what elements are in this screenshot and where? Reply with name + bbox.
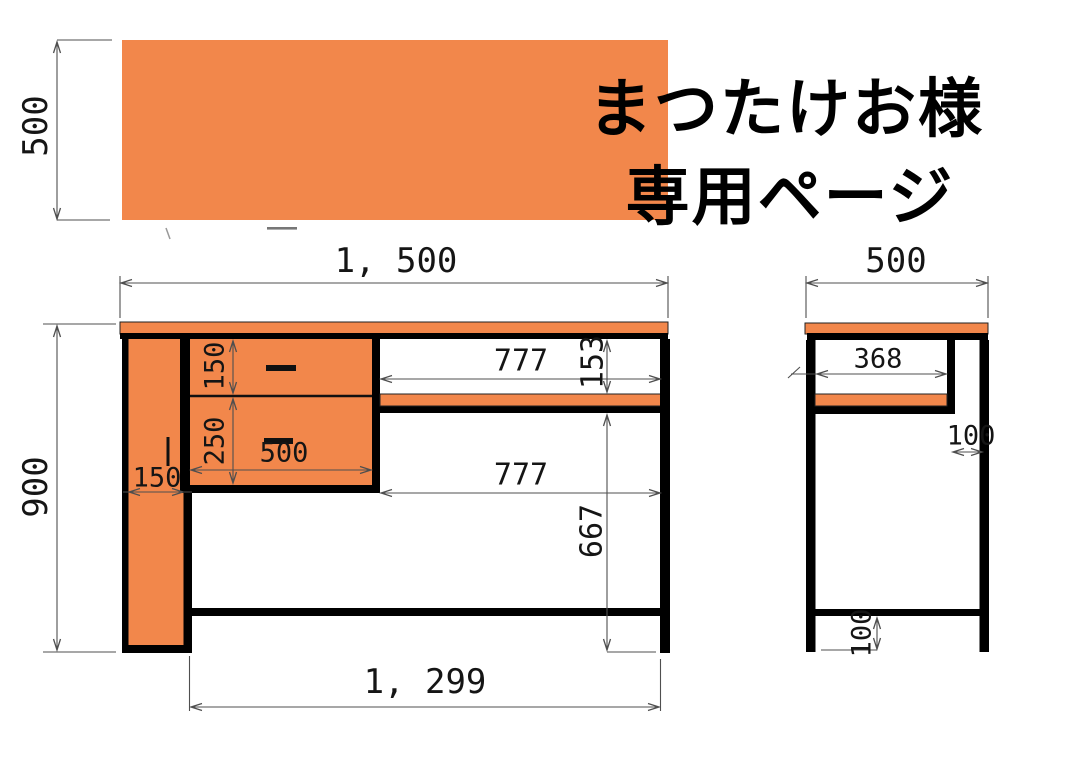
dim-front-bottom-inner-width: 1, 299	[190, 656, 661, 711]
front-shelf-board	[380, 394, 662, 406]
stray-dash	[267, 227, 297, 230]
dim-label-side-depth: 500	[865, 241, 926, 281]
extension-tick	[788, 367, 800, 378]
dim-label-upper-opening-width: 777	[494, 344, 548, 379]
front-desktop-board	[120, 322, 668, 334]
side-shelf-underside	[815, 406, 955, 414]
side-front-leg	[806, 340, 816, 652]
front-bottom-rail	[192, 608, 660, 616]
dim-label-side-back-gap: 100	[947, 421, 996, 452]
side-back-leg	[980, 340, 990, 652]
drawer-handle-upper	[266, 365, 296, 371]
dim-side-back-gap: 100	[947, 421, 996, 456]
dim-label-drawer-width: 500	[260, 438, 309, 469]
dim-label-front-height: 900	[16, 456, 56, 517]
front-right-leg	[660, 339, 670, 653]
dim-label-side-shelf-depth: 368	[854, 344, 903, 375]
dim-label-top-panel-height: 500	[16, 95, 56, 156]
dim-label-front-leg-width: 150	[133, 463, 182, 494]
side-desktop-underside	[807, 333, 988, 340]
top-panel-view: 500	[16, 40, 668, 239]
dim-upper-opening-height: 153	[576, 335, 611, 392]
dim-label-drawer-upper-height: 150	[200, 342, 231, 391]
dim-top-panel-height: 500	[16, 40, 112, 220]
dim-label-lower-opening-width: 777	[494, 458, 548, 493]
side-shelf-back-panel	[947, 340, 955, 414]
dim-side-depth: 500	[806, 241, 988, 318]
front-view: 1, 500 150 250	[16, 241, 670, 711]
title-line-2: 専用ページ	[626, 161, 955, 235]
side-view: 500 368 100	[788, 241, 995, 657]
dim-label-side-rail-floor-gap: 100	[847, 609, 878, 658]
side-shelf-board	[815, 394, 947, 406]
product-drawing-page: 500 まつたけお様 専用ページ 1, 500	[0, 0, 1080, 764]
stray-tick	[166, 228, 170, 239]
dim-label-front-bottom-inner-width: 1, 299	[364, 662, 487, 702]
dim-label-front-width: 1, 500	[335, 241, 458, 281]
title-line-1: まつたけお様	[588, 73, 984, 147]
technical-drawing-canvas: 500 まつたけお様 専用ページ 1, 500	[0, 0, 1080, 764]
dim-lower-opening-width: 777	[381, 458, 660, 497]
dim-label-upper-opening-height: 153	[576, 335, 611, 389]
side-desktop-board	[805, 323, 988, 334]
dim-label-drawer-lower-height: 250	[200, 417, 231, 466]
dim-upper-opening-width: 777	[381, 344, 660, 383]
side-bottom-rail	[815, 609, 980, 616]
dim-lower-opening-height: 667	[575, 415, 657, 652]
dim-label-lower-opening-height: 667	[575, 504, 610, 558]
top-panel-board	[122, 40, 668, 220]
dim-front-height: 900	[16, 324, 116, 652]
dim-front-width: 1, 500	[120, 241, 668, 318]
